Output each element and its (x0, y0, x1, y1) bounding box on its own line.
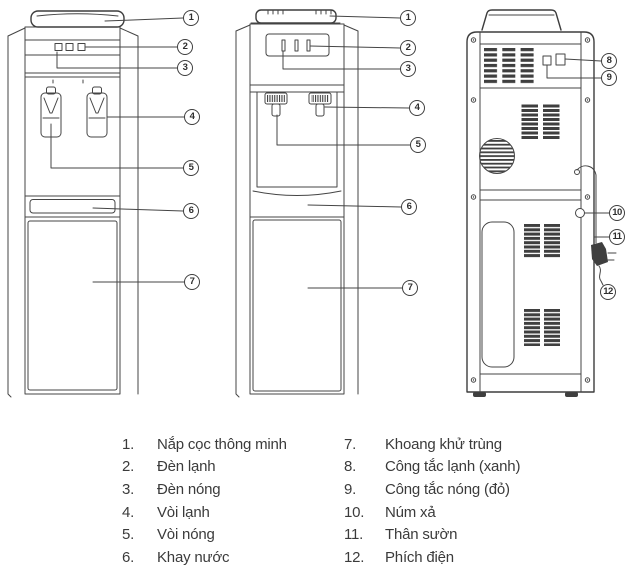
indicator-panel (25, 40, 120, 83)
front-view-b (236, 10, 358, 397)
rear-door-panel (482, 222, 514, 367)
legend-label: Nắp cọc thông minh (157, 436, 287, 453)
legend-item-2: 2. Đèn lạnh (122, 456, 287, 479)
callout-b-1: 1 (400, 10, 416, 26)
callout-b-4: 4 (409, 100, 425, 116)
indicator-panel (266, 34, 329, 56)
callout-a-7: 7 (184, 274, 200, 290)
legend-number: 3. (122, 481, 157, 498)
legend-label: Phích điện (385, 549, 454, 566)
callout-a-6: 6 (183, 203, 199, 219)
power-cord (575, 166, 604, 285)
callout-b-7: 7 (402, 280, 418, 296)
legend-item-1: 1. Nắp cọc thông minh (122, 433, 287, 456)
hot-tap (309, 93, 331, 116)
legend-label: Công tắc nóng (đỏ) (385, 481, 510, 498)
legend-item-12: 12. Phích điện (344, 546, 520, 569)
fan-grille (480, 139, 515, 174)
legend-label: Công tắc lạnh (xanh) (385, 458, 520, 475)
callout-r-9: 9 (601, 70, 617, 86)
cabinet-door (253, 220, 341, 391)
upper-vent-grille (484, 48, 534, 85)
legend-number: 6. (122, 549, 157, 566)
legend-label: Đèn nóng (157, 481, 220, 498)
legend-item-7: 7. Khoang khử trùng (344, 433, 520, 456)
legend-number: 8. (344, 458, 385, 475)
legend-label: Vòi lạnh (157, 504, 210, 521)
lower-vent-grille-2 (524, 309, 561, 346)
legend-item-8: 8. Công tắc lạnh (xanh) (344, 456, 520, 479)
legend-number: 11. (344, 526, 385, 543)
drain-knob (576, 209, 585, 218)
callout-b-5: 5 (410, 137, 426, 153)
callout-a-4: 4 (184, 109, 200, 125)
legend-label: Khoang khử trùng (385, 436, 502, 453)
legend-number: 7. (344, 436, 385, 453)
dispenser-line-drawings (0, 0, 640, 420)
drip-tray (250, 191, 344, 217)
legend-item-4: 4. Vòi lạnh (122, 501, 287, 524)
callout-a-1: 1 (183, 10, 199, 26)
callout-b-6: 6 (401, 199, 417, 215)
legend-number: 12. (344, 549, 385, 566)
dispense-recess (250, 85, 344, 187)
lower-vent-grille-1 (524, 224, 561, 258)
callout-a-3: 3 (177, 60, 193, 76)
cold-switch (556, 54, 565, 65)
legend-label: Khay nước (157, 549, 229, 566)
legend-item-9: 9. Công tắc nóng (đỏ) (344, 478, 520, 501)
legend-label: Thân sườn (385, 526, 457, 543)
callout-r-10: 10 (609, 205, 625, 221)
legend-column-right: 7. Khoang khử trùng 8. Công tắc lạnh (xa… (344, 433, 520, 569)
cabinet-door (28, 221, 117, 390)
power-plug (591, 242, 616, 266)
legend-label: Núm xả (385, 504, 435, 521)
body-outline (236, 24, 358, 397)
callout-b-3: 3 (400, 61, 416, 77)
legend-number: 9. (344, 481, 385, 498)
legend-number: 2. (122, 458, 157, 475)
legend-item-6: 6. Khay nước (122, 546, 287, 569)
legend-number: 10. (344, 504, 385, 521)
top-cap (482, 10, 561, 30)
callout-a-5: 5 (183, 160, 199, 176)
legend-label: Đèn lạnh (157, 458, 215, 475)
callout-r-12: 12 (600, 284, 616, 300)
top-cap (251, 10, 340, 23)
hot-switch (543, 56, 551, 65)
legend-column-left: 1. Nắp cọc thông minh 2. Đèn lạnh 3. Đèn… (122, 433, 287, 569)
feet (473, 392, 578, 397)
cold-tap (265, 93, 287, 116)
legend-number: 5. (122, 526, 157, 543)
hot-tap (87, 87, 107, 137)
mid-vent-grille (522, 105, 561, 141)
top-cap (31, 11, 124, 27)
drip-tray (25, 196, 120, 217)
callout-a-2: 2 (177, 39, 193, 55)
legend-item-11: 11. Thân sườn (344, 523, 520, 546)
legend-item-10: 10. Núm xả (344, 501, 520, 524)
callout-b-2: 2 (400, 40, 416, 56)
callout-r-8: 8 (601, 53, 617, 69)
legend-item-3: 3. Đèn nóng (122, 478, 287, 501)
dispenser-parts-diagram: 1 2 3 4 5 6 7 1 2 3 4 5 6 7 8 9 10 11 12… (0, 0, 640, 580)
legend-number: 1. (122, 436, 157, 453)
legend-item-5: 5. Vòi nóng (122, 523, 287, 546)
legend-number: 4. (122, 504, 157, 521)
callout-r-11: 11 (609, 229, 625, 245)
front-view-a (8, 11, 138, 397)
rear-view (467, 10, 616, 397)
legend-label: Vòi nóng (157, 526, 215, 543)
